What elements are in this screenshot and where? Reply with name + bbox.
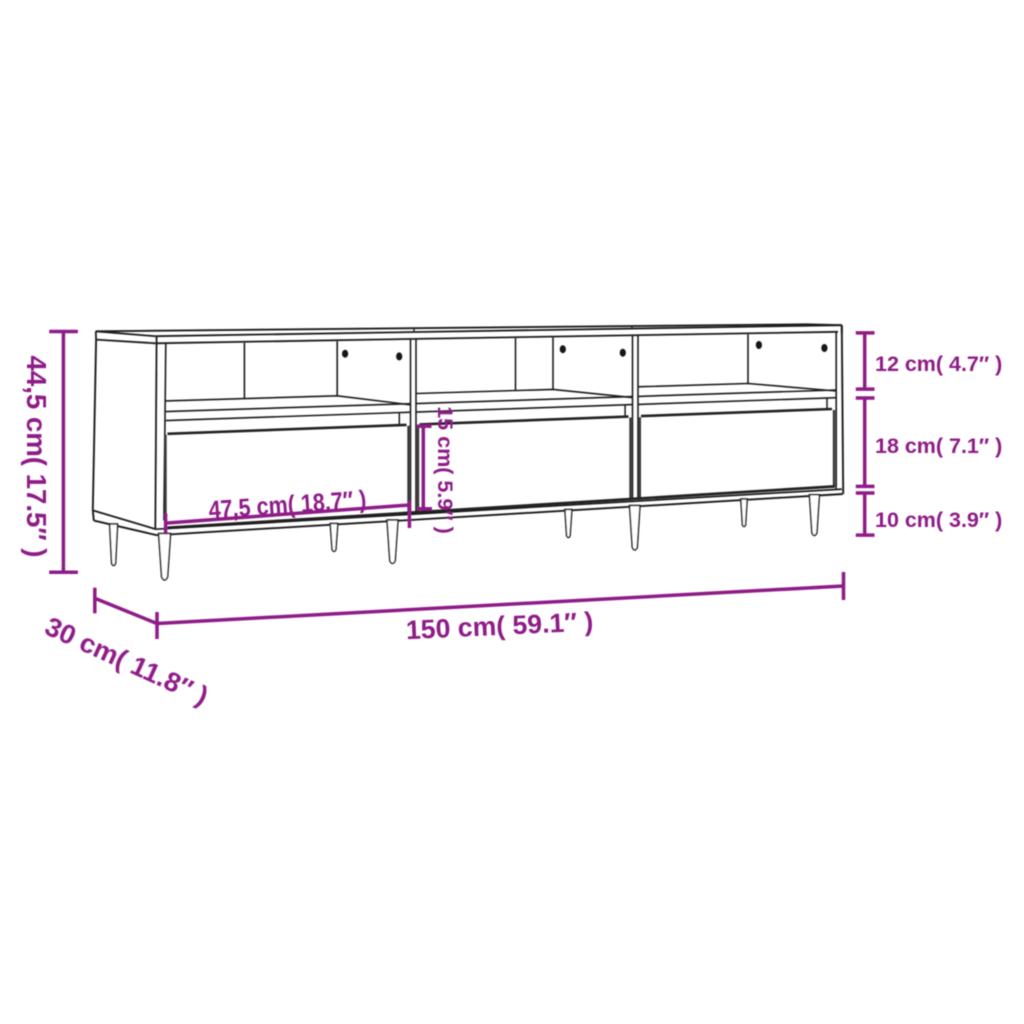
svg-text:10 cm( 3.9″ ): 10 cm( 3.9″ ) [875,508,1002,532]
svg-text:12 cm( 4.7″ ): 12 cm( 4.7″ ) [875,352,1002,376]
svg-text:44,5 cm( 17.5″ ): 44,5 cm( 17.5″ ) [21,356,52,558]
svg-text:18 cm( 7.1″ ): 18 cm( 7.1″ ) [875,434,1002,458]
svg-text:15 cm( 5.9″ ): 15 cm( 5.9″ ) [433,406,457,534]
